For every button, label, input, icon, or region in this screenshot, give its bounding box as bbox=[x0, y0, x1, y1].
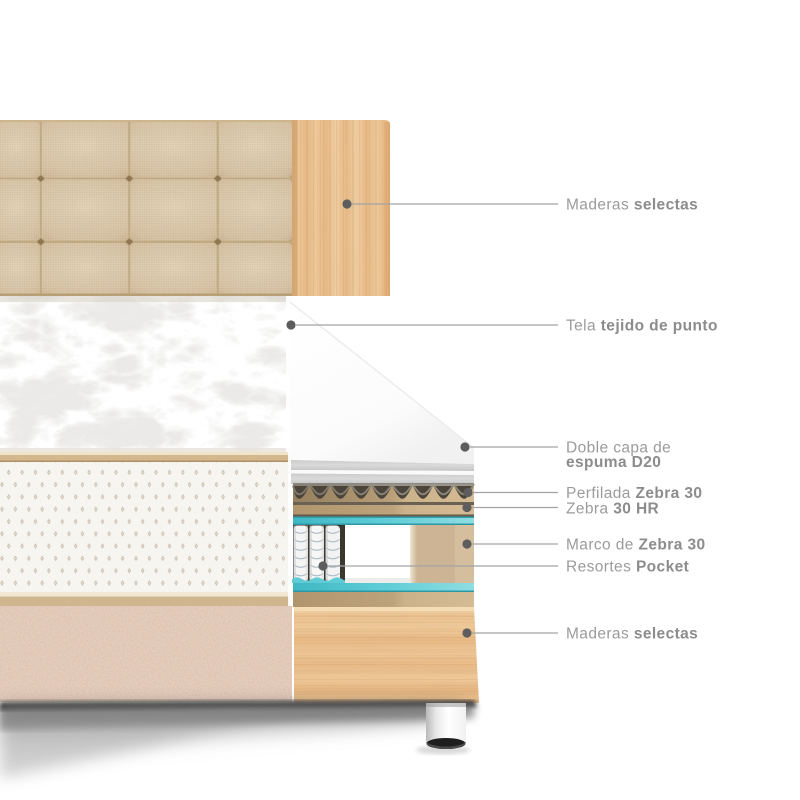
svg-text:Maderas selectas: Maderas selectas bbox=[566, 626, 698, 643]
svg-text:Perfilada Zebra 30: Perfilada Zebra 30 bbox=[566, 485, 702, 502]
svg-text:espuma D20: espuma D20 bbox=[566, 454, 661, 471]
svg-text:Tela tejido de punto: Tela tejido de punto bbox=[566, 318, 718, 335]
svg-text:Resortes Pocket: Resortes Pocket bbox=[566, 559, 689, 576]
svg-text:Marco de Zebra 30: Marco de Zebra 30 bbox=[566, 537, 706, 554]
svg-text:Zebra 30 HR: Zebra 30 HR bbox=[566, 501, 659, 518]
svg-text:Maderas selectas: Maderas selectas bbox=[566, 197, 698, 214]
